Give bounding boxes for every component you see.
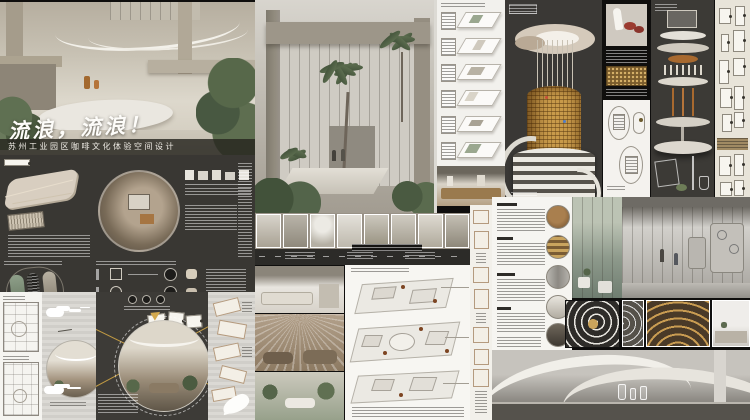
spiral-structure-photo [565, 300, 620, 348]
sketch-pole [692, 156, 694, 190]
texture-band-clouds [42, 292, 96, 420]
goose-sketch-photo [606, 4, 647, 46]
analysis-text-3 [238, 163, 252, 259]
machine-hopper [667, 10, 697, 28]
seam-2 [602, 0, 603, 197]
exploded-floors-strip [437, 0, 505, 166]
figure-1 [332, 150, 336, 161]
amber-arc-shelves-photo [646, 300, 710, 347]
copper-kettle [84, 76, 90, 89]
board-subtitle: 苏州工业园区咖啡文化体验空间设计 [8, 139, 176, 154]
garden-cafe-render [255, 372, 344, 420]
capsule-photo-strip [4, 264, 67, 292]
behavior-flow-diagram [94, 267, 252, 292]
stone-counter [492, 402, 750, 420]
machine-copper-band [668, 55, 698, 63]
floor-step-6 [437, 139, 505, 164]
machine-legs [664, 65, 702, 75]
palm-trunk-2 [401, 52, 403, 122]
timeline-header-chip [352, 244, 422, 251]
floor-step-2 [437, 35, 505, 60]
thumbnail [391, 214, 416, 248]
machine-disc-1 [660, 31, 706, 40]
floor-plans-strip [0, 292, 42, 420]
greenhouse-render [572, 197, 622, 298]
tower-axon-board [505, 0, 602, 213]
lattice-photo [622, 300, 644, 347]
palm-head-3 [279, 142, 317, 170]
photo-row [622, 300, 750, 347]
notes-column [492, 197, 572, 350]
design-board-collage: 流浪，流浪！ 苏州工业园区咖啡文化体验空间设计 [0, 0, 750, 420]
fragment-band [208, 292, 255, 420]
equipment-axon-board [651, 0, 714, 197]
axon-plan-1 [353, 277, 457, 315]
inset-photo-column [546, 265, 570, 289]
machine-pipe-3 [692, 88, 694, 116]
floor-plan-2 [3, 362, 39, 416]
concrete-beam-left [6, 2, 23, 64]
palm-head-2 [377, 26, 425, 62]
thumbnail [418, 214, 443, 248]
axon-plan-2 [349, 321, 463, 365]
thumbnail [283, 214, 308, 248]
floor-step-3 [437, 61, 505, 86]
thumbnail [310, 214, 335, 248]
timeline-bar [255, 249, 470, 265]
lobby-render: 流浪，流浪！ 苏州工业园区咖啡文化体验空间设计 [0, 2, 255, 155]
axon-caption [352, 407, 464, 417]
lounge-render [255, 314, 344, 371]
notes-subcolumn-dark [603, 0, 650, 100]
machine-pipe-2 [682, 88, 684, 116]
notes-text-2 [606, 89, 647, 97]
inset-photo-coffee-sacks [546, 205, 570, 229]
canopy-render [492, 350, 750, 420]
sketch-panel [654, 159, 679, 188]
section-title-left [4, 261, 62, 265]
figure-2 [341, 149, 345, 161]
plan-axon-panel [345, 265, 470, 420]
subtitle-bar: 苏州工业园区咖啡文化体验空间设计 [0, 139, 255, 155]
axon-plan-3 [349, 371, 463, 405]
floor-step-1 [437, 9, 505, 34]
glass-vessels [618, 382, 658, 402]
machine-disc-3 [658, 77, 708, 86]
cloud-graphic-2 [44, 386, 64, 394]
plan-detail-photo [98, 170, 180, 252]
analysis-text-1 [8, 235, 90, 257]
sketch-vessel [699, 176, 709, 190]
machinery-unit-2 [688, 237, 706, 269]
foreground-plants-right [383, 176, 437, 213]
notes-text-1 [606, 50, 647, 64]
machine-disc-2 [657, 43, 709, 53]
copper-kettle-2 [94, 80, 99, 89]
fixture-drawings-panel [603, 100, 650, 197]
floor-step-4 [437, 87, 505, 112]
atrium-render [255, 0, 437, 213]
tower-antennas [537, 40, 575, 92]
machinery-unit [710, 223, 744, 273]
machine-base-disc [654, 141, 712, 154]
plan-fragments-strip [470, 205, 492, 420]
bird-marks [58, 329, 72, 333]
machine-disc-4 [656, 117, 710, 127]
figure-3 [660, 249, 664, 262]
figure-4 [674, 253, 678, 265]
cloud-graphic-1 [46, 308, 64, 317]
journey-map-panel [96, 292, 208, 420]
hatched-building-model [7, 211, 44, 231]
analysis-section [0, 155, 255, 292]
floor-step-5 [437, 113, 505, 138]
machine-pipe-1 [672, 88, 674, 116]
palm-head-1 [315, 52, 375, 98]
kitchen-render [255, 266, 344, 313]
marble-counter-photo [712, 300, 750, 347]
sketch-plant [676, 184, 687, 191]
thumbnail [337, 214, 362, 248]
tower-board-label [509, 4, 537, 14]
thumbnail [445, 214, 469, 248]
inset-photo-shelving [546, 235, 570, 259]
floor-plan-1 [3, 302, 39, 352]
thumbnail [256, 214, 281, 248]
seam [434, 0, 437, 213]
materials-strip [717, 138, 748, 150]
parts-drawings-strip [715, 0, 750, 199]
section-label-chip [4, 159, 30, 166]
industrial-render [622, 197, 750, 298]
thumbnail [364, 214, 389, 248]
foreground-plants-left [255, 178, 321, 213]
coffee-bean-swatch [606, 66, 647, 86]
section-title-right [96, 261, 176, 265]
analysis-text-2 [185, 205, 237, 231]
